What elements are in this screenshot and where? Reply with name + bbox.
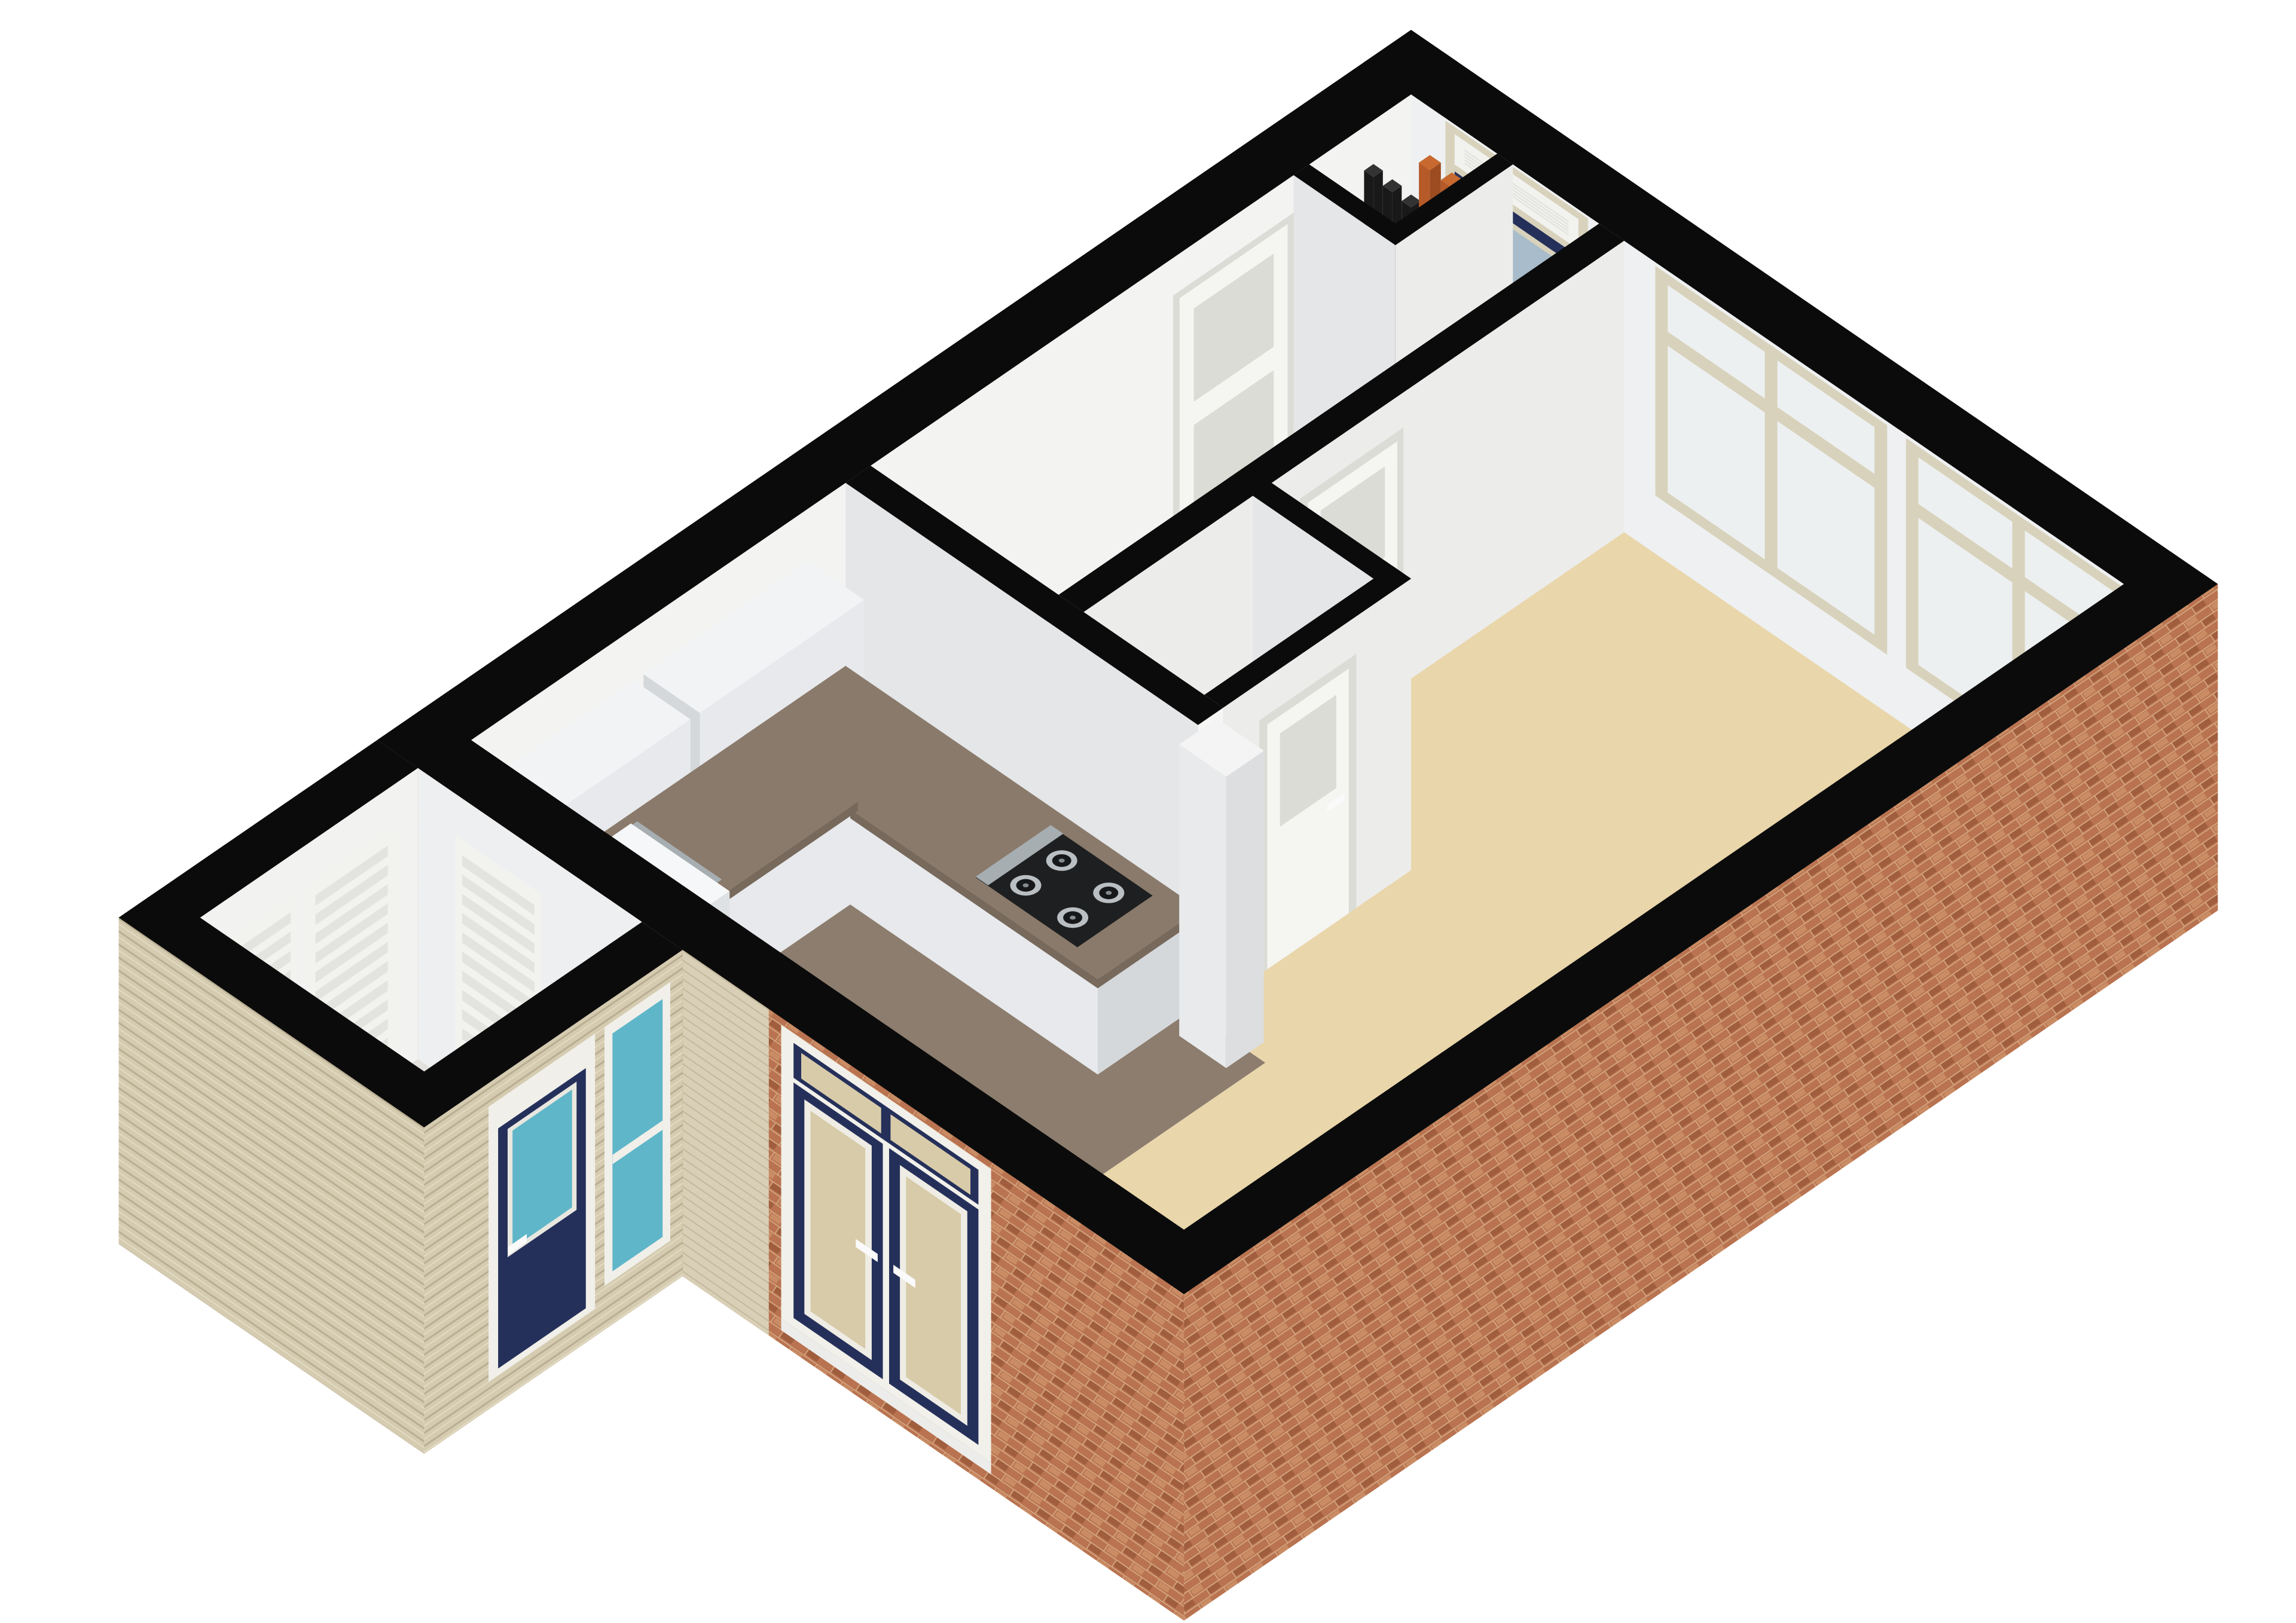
floorplan-3d-stage xyxy=(0,0,2296,1623)
burner-3c xyxy=(1023,884,1029,888)
chimney-column-sw xyxy=(1179,744,1226,1068)
annex-window-glass xyxy=(612,999,662,1271)
sw-facade-pale-strip xyxy=(683,950,769,1335)
burner-2c xyxy=(1106,891,1112,895)
french-glass-r xyxy=(906,1176,961,1414)
floorplan-3d-render xyxy=(0,0,2296,1623)
chimney-column-se xyxy=(1226,751,1264,1068)
burner-1c xyxy=(1059,858,1065,863)
french-glass-l xyxy=(811,1111,866,1349)
burner-4c xyxy=(1070,916,1076,920)
